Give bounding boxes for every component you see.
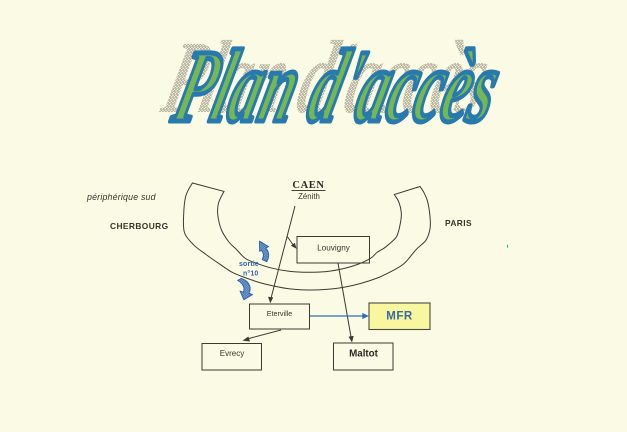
- svg-text:Louvigny: Louvigny: [317, 244, 351, 253]
- svg-text:CHERBOURG: CHERBOURG: [110, 221, 169, 231]
- svg-text:périphérique sud: périphérique sud: [86, 192, 157, 202]
- svg-text:MFR: MFR: [386, 311, 413, 323]
- svg-text:Eterville: Eterville: [267, 309, 293, 318]
- svg-text:n°10: n°10: [243, 270, 258, 278]
- svg-text:PARIS: PARIS: [445, 218, 472, 228]
- svg-text:Evrecy: Evrecy: [220, 349, 244, 358]
- svg-text:Maltot: Maltot: [349, 349, 379, 360]
- svg-text:sortie: sortie: [239, 261, 259, 268]
- svg-text:Plan d'accès: Plan d'accès: [163, 29, 512, 144]
- svg-text:CAEN: CAEN: [292, 180, 324, 191]
- svg-text:Zénith: Zénith: [298, 192, 320, 201]
